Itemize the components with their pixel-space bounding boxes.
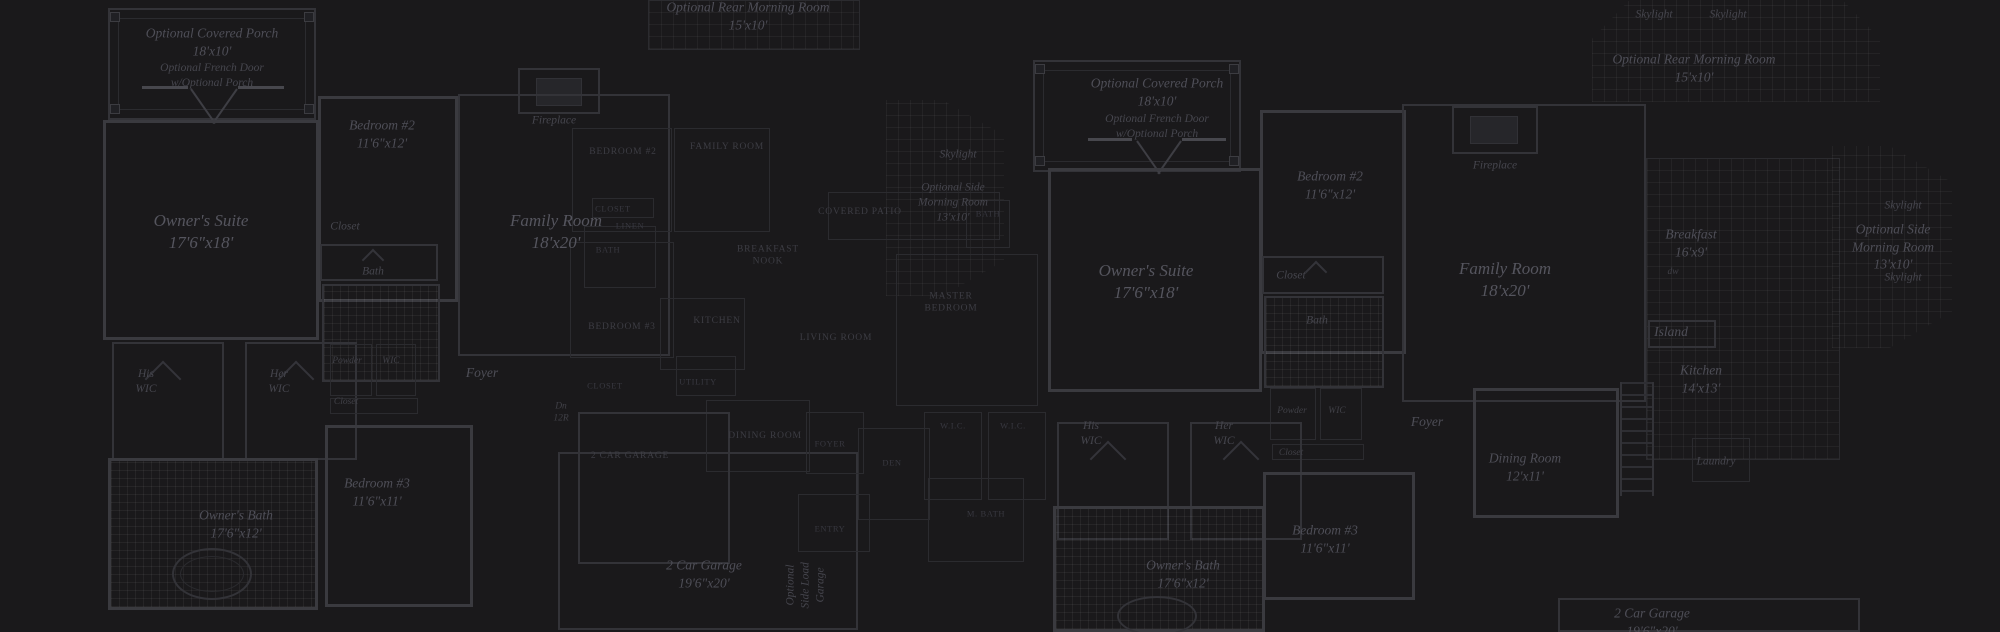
porch-post bbox=[1229, 156, 1239, 166]
kitchen-breakfast-area bbox=[1646, 158, 1840, 460]
rear-morning-room-area bbox=[1592, 0, 1880, 102]
label-middle-closet2: CLOSET bbox=[587, 380, 623, 391]
mid-foyer bbox=[806, 412, 864, 474]
garage-outline bbox=[1558, 598, 1860, 632]
mid-closet bbox=[592, 198, 654, 218]
bath-room bbox=[1264, 296, 1384, 388]
french-door-jamb bbox=[1182, 138, 1226, 141]
bedroom3-room bbox=[325, 425, 473, 607]
porch-post bbox=[304, 104, 314, 114]
french-door-jamb bbox=[1088, 138, 1132, 141]
mid-utility bbox=[676, 356, 736, 396]
porch-post bbox=[1035, 156, 1045, 166]
mid-bedroom3-room bbox=[570, 242, 674, 358]
side-morning-room-area bbox=[1832, 146, 1952, 348]
porch-inner-outline bbox=[118, 18, 306, 110]
mid-master-bath bbox=[928, 478, 1024, 562]
label-right-foyer: Foyer bbox=[1411, 413, 1443, 431]
rear-morning-room-area bbox=[648, 0, 860, 50]
porch-post bbox=[304, 12, 314, 22]
label-left-dn-stairs: Dn 12R bbox=[553, 401, 568, 426]
porch-post bbox=[1035, 64, 1045, 74]
french-door-jamb bbox=[238, 86, 284, 89]
mid-master-bedroom bbox=[896, 254, 1038, 406]
label-left-foyer: Foyer bbox=[466, 364, 498, 382]
powder-room bbox=[330, 344, 372, 396]
bathtub-inner bbox=[180, 556, 244, 592]
his-wic-room bbox=[112, 342, 224, 460]
label-middle-breakfast-nook: BREAKFAST NOOK bbox=[737, 244, 799, 269]
porch-post bbox=[1229, 64, 1239, 74]
bedroom3-room bbox=[1263, 472, 1415, 600]
staircase bbox=[1620, 382, 1654, 496]
family-room-outline bbox=[1402, 104, 1646, 402]
porch-inner-outline bbox=[1043, 70, 1231, 162]
wic-room bbox=[376, 344, 416, 396]
mid-garage bbox=[578, 412, 730, 564]
owners-suite-room bbox=[103, 120, 319, 340]
label-middle-living-room: LIVING ROOM bbox=[800, 332, 872, 344]
mid-den bbox=[858, 428, 930, 520]
porch-post bbox=[110, 12, 120, 22]
closet-band bbox=[330, 398, 418, 414]
french-door-jamb bbox=[142, 86, 188, 89]
owners-suite-room bbox=[1048, 168, 1262, 392]
dining-room-outline bbox=[1473, 388, 1619, 518]
bathtub bbox=[1117, 596, 1197, 632]
mid-bath2 bbox=[966, 200, 1010, 248]
laundry-room bbox=[1692, 438, 1750, 482]
kitchen-island bbox=[1648, 320, 1716, 348]
mid-family-room bbox=[674, 128, 770, 232]
floorplan-canvas: Optional Covered Porch 18'x10'Optional F… bbox=[0, 0, 2000, 632]
wic-room bbox=[1320, 388, 1362, 440]
porch-post bbox=[110, 104, 120, 114]
